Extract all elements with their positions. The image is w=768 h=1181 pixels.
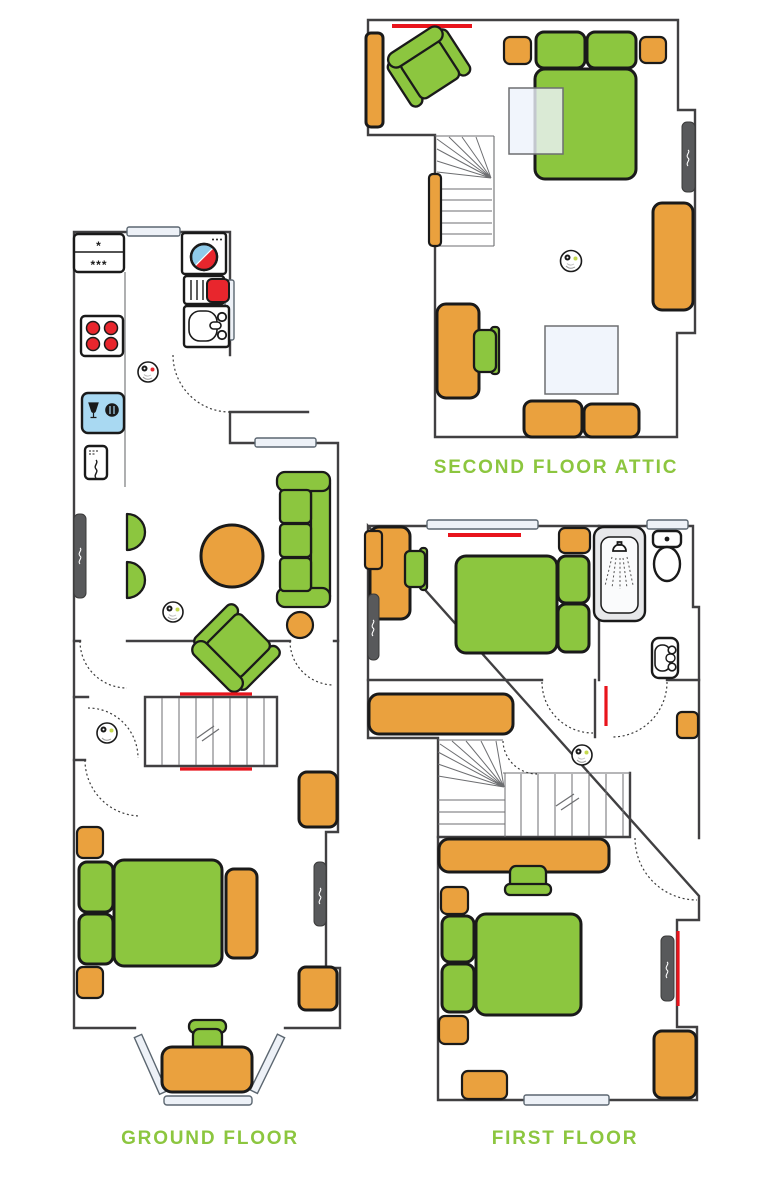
sofa-cushion: [280, 524, 311, 557]
attic-radiator: [682, 122, 695, 192]
attic-desk-area: [437, 304, 499, 398]
shower: [594, 527, 645, 621]
bay-desk-area: [162, 1020, 252, 1092]
bedroom1-window: [427, 520, 538, 529]
second-floor-attic-plan: [366, 20, 695, 437]
attic-storage-seat: [584, 404, 639, 437]
attic-pillow: [536, 32, 585, 68]
kitchen-smoke-detector: [138, 362, 158, 382]
gf-nightstand-top: [77, 827, 103, 858]
counter-chair: [127, 562, 145, 598]
landing-wardrobe: [369, 694, 513, 734]
round-table: [201, 525, 263, 587]
ground-floor-label: GROUND FLOOR: [121, 1128, 299, 1149]
counter-chair: [127, 514, 145, 550]
ff-chair1-seat: [405, 551, 425, 587]
fridge-freezer: * ***: [74, 234, 124, 272]
boiler: [184, 276, 229, 304]
microwave: [85, 446, 107, 479]
floor-plan-drawing: * ***: [0, 0, 768, 1181]
stair-break-symbol: [197, 726, 219, 741]
living-armchair: [186, 602, 282, 698]
hall-smoke-detector: [97, 723, 117, 743]
washing-machine: [182, 233, 226, 274]
gf-bedside-bench: [226, 869, 257, 958]
living-room-window: [255, 438, 316, 447]
living-hall-door-swing-right: [290, 641, 334, 685]
hall-cabinet: [299, 772, 337, 827]
living-smoke-detector: [163, 602, 183, 622]
ff-pillow: [442, 964, 474, 1012]
ground-floor-plan: * ***: [74, 227, 340, 1105]
ground-bedroom: [77, 827, 337, 1010]
kitchen-window: [127, 227, 180, 236]
cutlery-icon: [105, 403, 119, 417]
ff-bed1: [456, 528, 590, 653]
gf-corner-cabinet: [299, 967, 337, 1010]
attic-left-wardrobe: [366, 33, 383, 127]
basin: [652, 638, 678, 678]
bedroom1-door-swing: [542, 682, 593, 733]
sofa-arm: [277, 472, 330, 491]
ff-nightstand2b: [439, 1016, 468, 1044]
bathroom-door-swing: [612, 682, 667, 737]
stair-break-symbol: [556, 794, 579, 810]
ff-nightstand1: [559, 528, 590, 553]
attic-smoke-detector: [561, 251, 582, 272]
bedroom2-window: [524, 1095, 609, 1105]
attic-stairs: [429, 136, 494, 246]
ff-bed2: [442, 914, 581, 1015]
first-floor-plan: [365, 520, 699, 1105]
floor-plan-page: * ***: [0, 0, 768, 1181]
sofa-cushion: [280, 490, 311, 523]
attic-desk-chair-seat: [474, 330, 496, 372]
attic-label: SECOND FLOOR ATTIC: [434, 457, 679, 478]
ff-radiator1: [368, 594, 379, 660]
attic-floor-skylight: [545, 326, 618, 394]
first-floor-stairs: [438, 741, 623, 837]
stairs-top-swing: [503, 741, 537, 774]
ff-radiator2: [661, 936, 674, 1001]
ff-nightstand2a: [441, 887, 468, 914]
attic-skylight-over-bed: [509, 88, 563, 154]
gf-nightstand-bottom: [77, 967, 103, 998]
first-floor-label: FIRST FLOOR: [492, 1128, 638, 1149]
sofa-back: [311, 478, 330, 602]
toilet: [653, 531, 681, 581]
freezer-star-rating-bottom: ***: [90, 258, 107, 272]
attic-nightstand-left: [504, 37, 531, 64]
landing-smoke-detector: [572, 745, 592, 765]
dishwasher: [82, 393, 124, 433]
ff-desk1-return: [365, 531, 382, 569]
bedroom-door-swing: [85, 760, 140, 816]
ff-mattress2: [476, 914, 581, 1015]
ground-stairs: [162, 694, 264, 769]
ff-mattress1: [456, 556, 557, 653]
living-hall-door-swing: [80, 641, 127, 688]
ff-pillow: [558, 556, 589, 603]
gf-mattress: [114, 860, 222, 966]
ff-pillow: [558, 604, 589, 652]
attic-tall-wardrobe: [653, 203, 693, 310]
bay-desk: [162, 1047, 252, 1092]
hob: [81, 316, 123, 356]
attic-armchair: [382, 21, 473, 109]
attic-desk: [437, 304, 479, 398]
attic-storage-seat: [524, 401, 582, 437]
freezer-star-rating-top: *: [96, 239, 102, 253]
gf-pillow: [79, 914, 113, 964]
ff-wardrobe2: [654, 1031, 696, 1098]
attic-nightstand-right: [640, 37, 666, 63]
bathroom-window: [647, 520, 688, 529]
attic-pillow: [587, 32, 636, 68]
sofa: [277, 472, 330, 607]
pouffe: [287, 612, 313, 638]
ff-pillow: [442, 916, 474, 962]
ff-chest: [462, 1071, 507, 1099]
sofa-cushion: [280, 558, 311, 591]
kitchen-sink: [184, 306, 229, 347]
landing-door-swing: [635, 838, 697, 900]
gf-bedroom-radiator: [314, 862, 326, 926]
ff-chair2-back: [505, 884, 551, 895]
gf-pillow: [79, 862, 113, 912]
kitchen-door-swing: [173, 355, 230, 412]
attic-stair-rail: [429, 174, 441, 246]
landing-wall-cabinet: [677, 712, 698, 738]
